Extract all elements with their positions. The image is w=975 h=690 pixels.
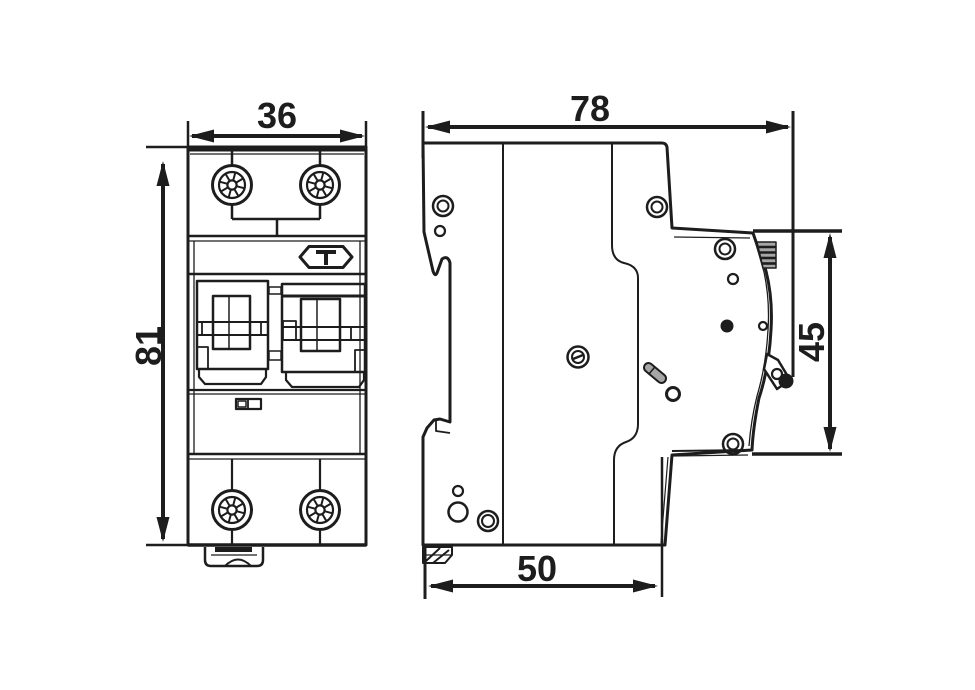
terminal-screw-icon [213,166,252,205]
arrowhead-right-icon [340,130,365,143]
toggle-left [197,281,268,384]
arrowhead-up-icon [157,161,170,186]
test-button-t-icon [316,252,336,265]
side-depth-label: 78 [570,88,610,129]
terminal-screw-icon [301,491,340,530]
dimension-drawing-canvas: 36 81 78 45 50 [0,0,975,690]
arrowhead-left-icon [189,130,214,143]
test-button [300,247,352,268]
arrowhead-up-icon [824,233,837,258]
front-width-dimension: 36 [188,95,366,150]
indicator-window [236,399,261,409]
front-width-label: 36 [257,95,297,136]
release-pin [642,361,668,385]
front-view [188,147,366,566]
side-base-depth-label: 50 [517,548,557,589]
terminal-screw-icon [213,491,252,530]
arrowhead-left-icon [428,580,453,593]
terminal-screw-serration [757,242,776,268]
toggle-lever-side [764,354,794,389]
bottom-terminal-section [213,459,340,545]
toggle-right [282,284,365,387]
arrowhead-right-icon [633,580,658,593]
top-terminal-section [213,150,340,237]
arrowhead-left-icon [425,121,450,134]
front-height-dimension: 81 [128,147,191,545]
arrowhead-right-icon [766,121,791,134]
side-view-holes-and-rivets [433,196,767,531]
din-clip-front [205,547,263,566]
breaker-dimension-drawing: 36 81 78 45 50 [0,0,975,690]
side-base-depth-dimension: 50 [425,457,662,599]
toggle-switches [197,281,365,387]
side-front-height-label: 45 [791,322,832,362]
arrowhead-down-icon [824,427,837,452]
arrowhead-down-icon [157,517,170,542]
side-view [423,143,794,563]
front-height-label: 81 [128,326,169,366]
terminal-screw-icon [301,166,340,205]
din-clip-side [423,547,452,563]
side-view-outline [423,143,771,545]
